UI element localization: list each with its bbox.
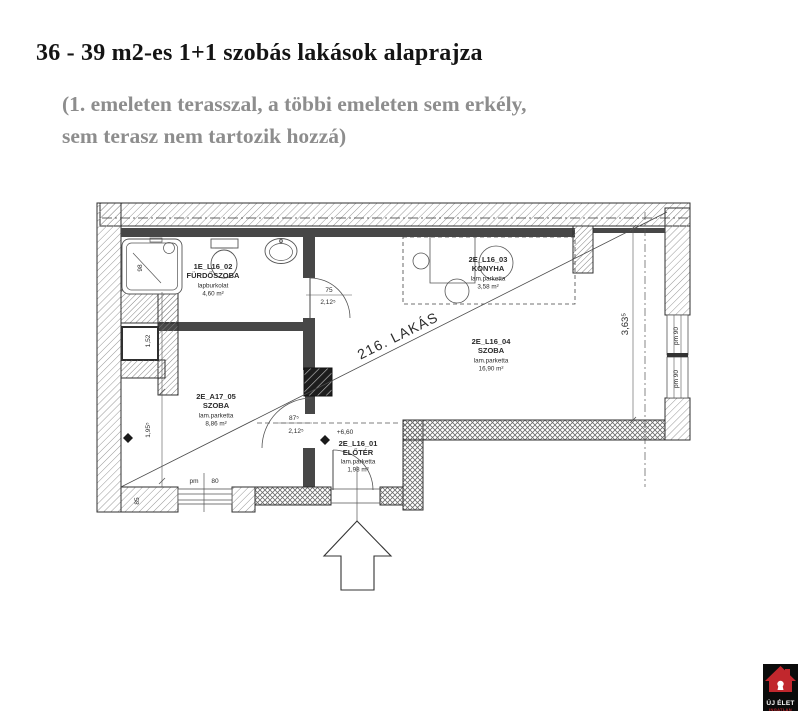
level-marker-icon — [320, 435, 330, 445]
window-bottom-label: pm — [189, 478, 198, 485]
dim-wall-width: 85 — [134, 497, 141, 505]
dim-shaft: 1,52 — [145, 334, 152, 347]
room-label-material: lam.parketta — [474, 358, 509, 365]
room-label-material: lam.parketta — [471, 276, 506, 283]
dim-room-depth: 3,63⁵ — [620, 313, 631, 335]
shower-icon — [122, 238, 182, 294]
walls — [97, 203, 690, 512]
room-label-id: 1E_L16_02 — [194, 262, 233, 271]
room-label-id: 2E_L16_03 — [469, 255, 508, 264]
room-label-material: lam.parketta — [341, 459, 376, 466]
room-label-name: FÜRDŐSZOBA — [187, 271, 240, 280]
dim-room-width: 1,95⁵ — [145, 422, 152, 438]
windows — [178, 315, 688, 504]
page: 36 - 39 m2-es 1+1 szobás lakások alapraj… — [0, 0, 800, 712]
apartment-ref-label: 216. LAKÁS — [355, 309, 441, 363]
logo-name: ÚJ ÉLET — [763, 700, 798, 707]
window-bottom-size: 80 — [211, 478, 219, 485]
room-label-name: KONYHA — [472, 264, 505, 273]
logo-tagline: INGATLAN — [763, 707, 798, 712]
room-label-area: 1,98 m² — [347, 467, 368, 474]
window-bottom — [178, 489, 232, 504]
room-label-id: 2E_A17_05 — [196, 392, 236, 401]
dim-room-door-width: 87⁵ — [289, 415, 299, 422]
dim-bath-door-width: 75 — [325, 287, 333, 294]
washbasin-icon — [265, 238, 297, 264]
dim-bath-door-height: 2,12⁵ — [320, 299, 336, 306]
hob-icon — [413, 253, 429, 269]
room-label-id: 2E_L16_04 — [472, 337, 512, 346]
room-label-material: lapburkolat — [198, 283, 229, 290]
room-label-area: 3,58 m² — [477, 284, 498, 291]
room-label-area: 4,60 m² — [202, 291, 223, 298]
room-label-name: ELŐTÉR — [343, 448, 374, 457]
window-right-upper-label: pm 90 — [673, 327, 680, 345]
room-label-id: 2E_L16_01 — [339, 439, 378, 448]
window-right-lower-label: pm 90 — [673, 370, 680, 388]
room-label-area: 8,86 m² — [205, 421, 226, 428]
doors — [262, 278, 380, 521]
floor-plan-drawing: 216. LAKÁS 1E_L16_02 FÜRDŐSZOBA lapburko… — [0, 0, 800, 712]
entrance-level-label: +6,60 — [337, 429, 354, 436]
house-icon — [763, 664, 798, 694]
dim-shower-width: 98 — [137, 264, 144, 272]
room-label-material: lam.parketta — [199, 413, 234, 420]
apartment-diagonal-line — [121, 212, 667, 487]
room-label-name: SZOBA — [203, 401, 230, 410]
room-label-name: SZOBA — [478, 346, 505, 355]
agency-logo: ÚJ ÉLET INGATLAN — [763, 664, 798, 711]
entrance-arrow-icon — [324, 521, 391, 590]
bathroom-door — [310, 278, 350, 318]
dim-room-door-height: 2,12⁵ — [288, 428, 304, 435]
level-marker-icon — [123, 433, 133, 443]
room-label-area: 16,90 m² — [479, 366, 504, 373]
